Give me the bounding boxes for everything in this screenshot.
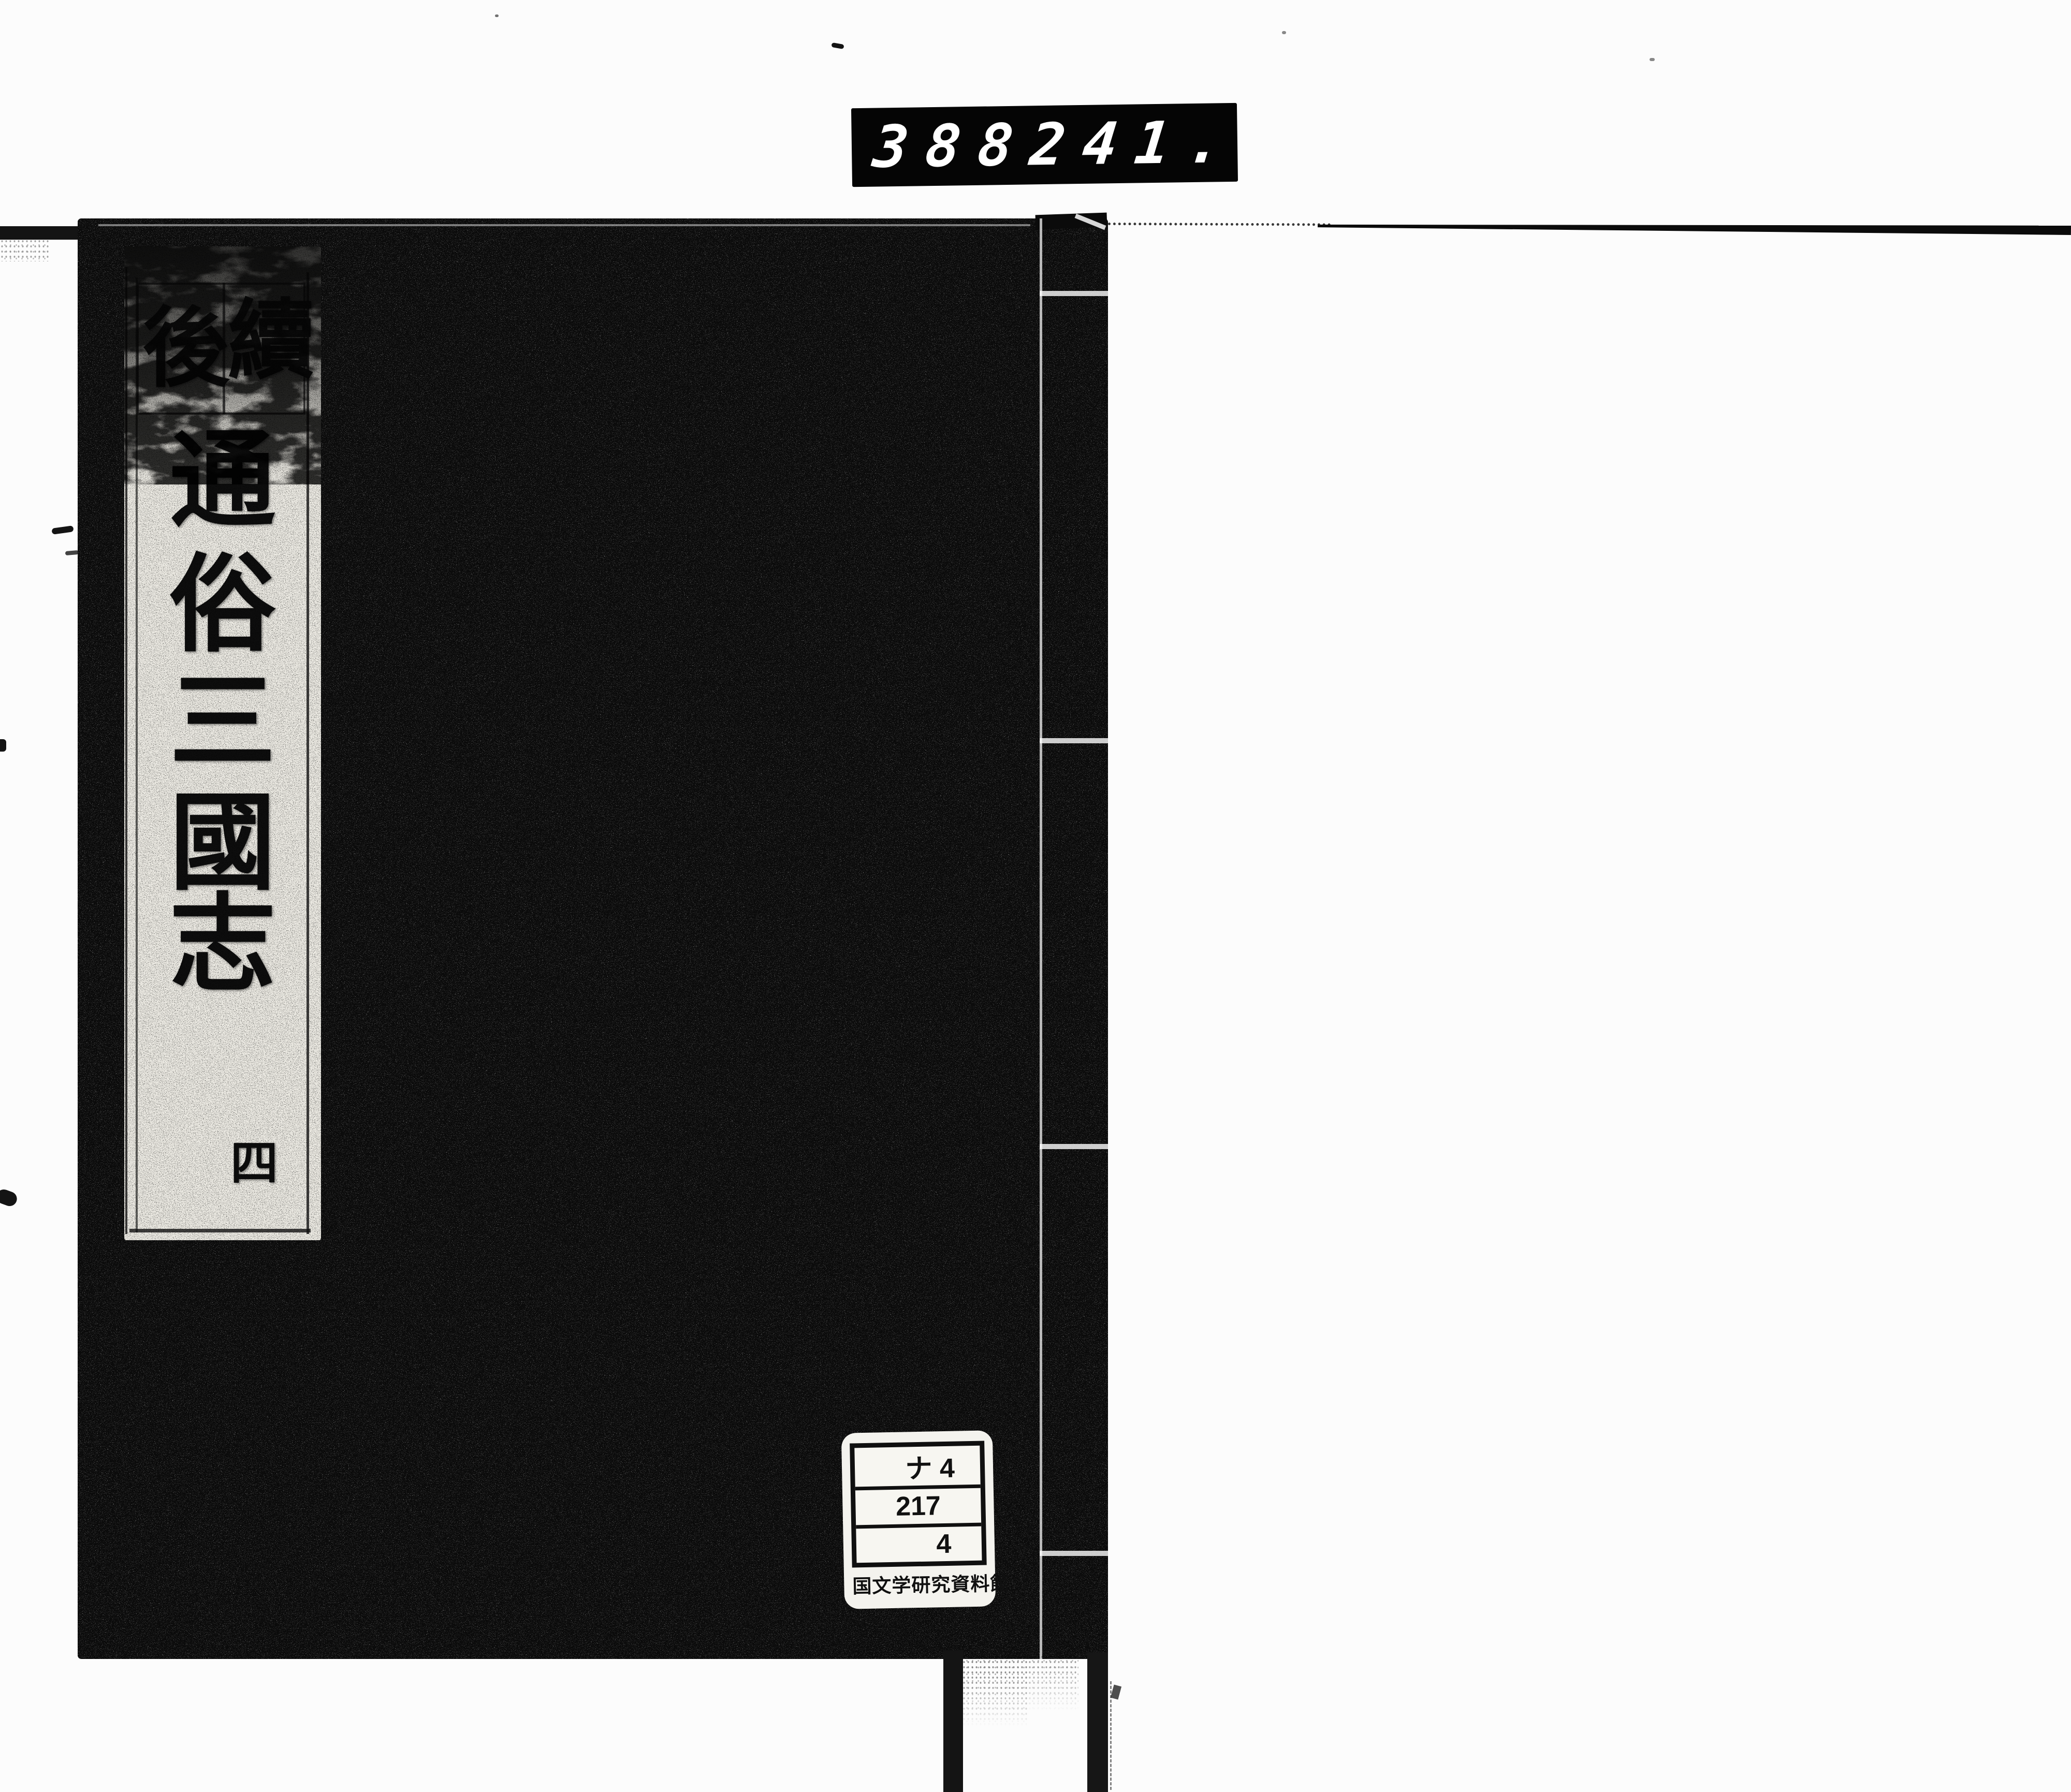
scan-speck [0,739,6,752]
counter-digits-right: 241. [1027,113,1243,174]
book-corner-wear [1035,213,1107,230]
call-number-row-3: 4 [856,1522,982,1563]
institution-name: 国文学研究資料館 [852,1568,987,1598]
scan-speck [51,525,74,535]
scan-speck [65,550,79,555]
scan-speck [1282,31,1286,34]
scan-speck [1650,58,1655,61]
scan-speck [831,42,844,49]
binding-strip-left-fray [962,1654,1028,1727]
spine-crease-line [1040,218,1042,1659]
call-number-row-1: ナ 4 [854,1446,980,1487]
slip-top-wear-shade [124,246,321,484]
scan-mark-left-tab-fuzz [0,239,49,261]
binding-strip-middle-fray [1028,1654,1078,1711]
scanned-book-cover-page: 388 241. 續 [0,0,2071,1792]
title-char-5: 志 [124,892,321,998]
spine-segment-gap [1040,291,1108,296]
counter-digits-left: 388 [870,116,1033,176]
book-cover: 續 後 通 俗 三 國 志 四 ナ 4 217 4 国文学研究資料館 [78,218,1108,1659]
call-number-box: ナ 4 217 4 [850,1441,987,1568]
table-edge-line [1318,219,2071,237]
table-edge-line-dotted [1108,223,1331,226]
title-char-2: 俗 [124,553,321,659]
call-number-counter-display: 388 241. [851,103,1238,187]
volume-number-char: 四 [226,1140,283,1187]
scan-speck [0,1187,19,1208]
library-label: ナ 4 217 4 国文学研究資料館 [841,1430,996,1609]
binding-strip-left [943,1650,963,1792]
binding-strip-right [1087,1652,1108,1792]
slip-border-bottom [129,1229,311,1232]
call-number-row-2: 217 [855,1485,981,1525]
spine-segment-gap [1040,1551,1108,1556]
spine-segment-gap [1040,1144,1108,1149]
scan-speck [1111,1685,1121,1700]
cover-top-edge-highlight [98,224,1030,226]
scan-speck [495,14,499,17]
spine-segment-gap [1040,738,1108,743]
title-slip: 續 後 通 俗 三 國 志 四 [124,246,321,1240]
title-char-3: 三 [124,670,321,776]
title-char-4: 國 [124,791,321,897]
